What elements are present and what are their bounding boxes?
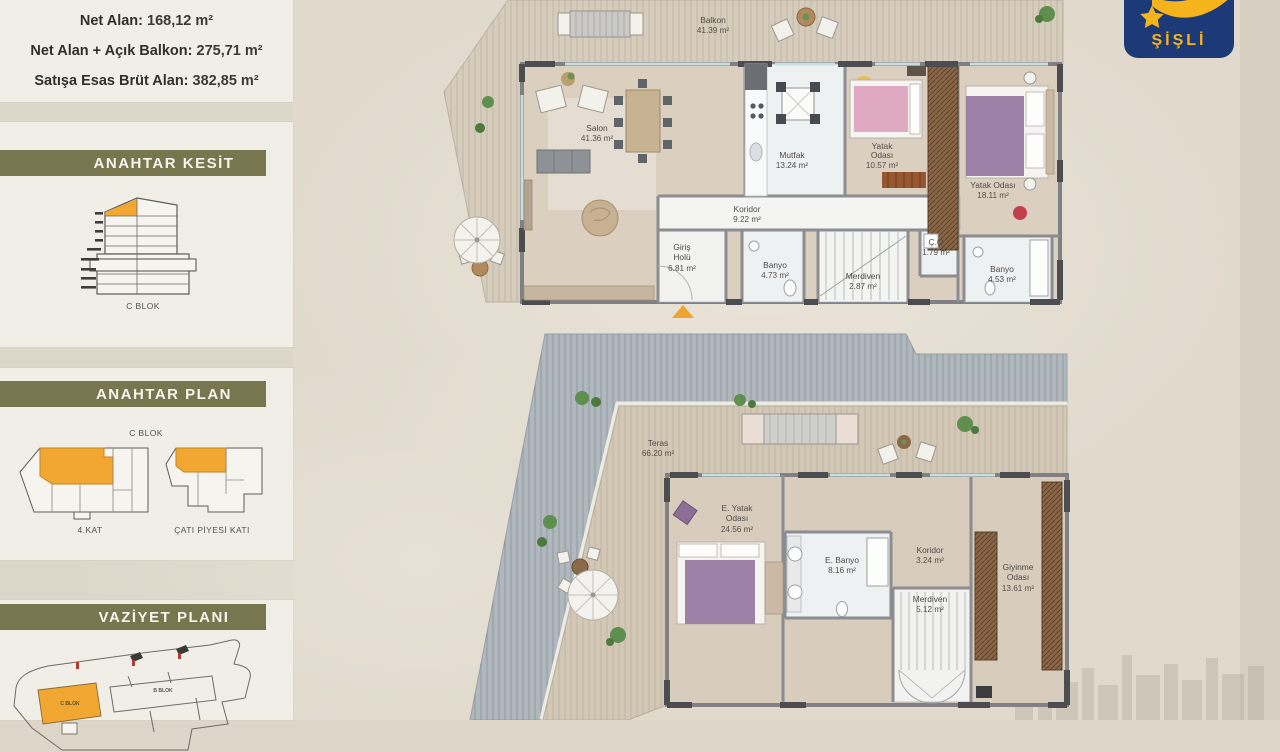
key-plan-cati-unit bbox=[176, 448, 226, 472]
svg-text:Yatak Odası: Yatak Odası bbox=[970, 180, 1015, 190]
net-alan-balkon-label: Net Alan + Açık Balkon: bbox=[30, 43, 192, 59]
entrance-arrow bbox=[672, 305, 694, 318]
svg-text:5.12 m²: 5.12 m² bbox=[916, 605, 944, 614]
net-alan-value: 168,12 m² bbox=[147, 13, 213, 29]
terrace-bench bbox=[742, 414, 858, 444]
kesit-caption: C BLOK bbox=[126, 301, 160, 311]
area-summary: Net Alan: 168,12 m² Net Alan + Açık Balk… bbox=[0, 6, 293, 96]
anahtar-plan-blok-caption: C BLOK bbox=[129, 428, 163, 438]
svg-text:1.79 m²: 1.79 m² bbox=[922, 248, 950, 257]
brut-alan-line: Satışa Esas Brüt Alan: 382,85 m² bbox=[0, 66, 293, 96]
site-b-blok-label: B BLOK bbox=[153, 688, 173, 694]
vaziyet-plani-header: VAZİYET PLANI bbox=[0, 604, 266, 630]
key-plan-cati bbox=[166, 448, 262, 512]
svg-text:10.57 m²: 10.57 m² bbox=[866, 161, 899, 170]
anahtar-kesit-title: ANAHTAR KESİT bbox=[94, 155, 235, 172]
anahtar-plan-title: ANAHTAR PLAN bbox=[96, 386, 232, 403]
kesit-building-section bbox=[81, 198, 196, 294]
svg-text:Giriş: Giriş bbox=[673, 242, 690, 252]
upper-floor-plan: Balkon 41.39 m² Salon 41.36 m² Mutfak 13… bbox=[430, 0, 1070, 322]
svg-text:Ç.O: Ç.O bbox=[929, 237, 944, 247]
lower-floor-plan: Teras 66.20 m² E. Yatak Odası 24.56 m² E… bbox=[430, 330, 1070, 720]
vaziyet-plani-title: VAZİYET PLANI bbox=[99, 609, 230, 626]
svg-text:4.53 m²: 4.53 m² bbox=[988, 275, 1016, 284]
key-plan-4kat-unit bbox=[40, 448, 113, 484]
svg-text:Merdiven: Merdiven bbox=[846, 271, 881, 281]
svg-text:4.73 m²: 4.73 m² bbox=[761, 271, 789, 280]
svg-text:Odası: Odası bbox=[871, 150, 893, 160]
site-building-b-blok: B BLOK bbox=[153, 688, 173, 694]
svg-text:6.81 m²: 6.81 m² bbox=[668, 264, 696, 273]
svg-text:E. Yatak: E. Yatak bbox=[722, 503, 754, 513]
anahtar-plan-header: ANAHTAR PLAN bbox=[0, 381, 266, 407]
brut-alan-value: 382,85 m² bbox=[193, 73, 259, 89]
anahtar-plan-diagrams: C BLOK 4.KAT ÇATI PİYESİ KATI bbox=[0, 424, 293, 544]
kesit-diagram: C BLOK bbox=[75, 182, 220, 314]
svg-text:66.20 m²: 66.20 m² bbox=[642, 449, 675, 458]
svg-text:Odası: Odası bbox=[726, 513, 748, 523]
kesit-highlight-floor bbox=[106, 199, 137, 216]
svg-text:Koridor: Koridor bbox=[734, 204, 761, 214]
svg-text:Banyo: Banyo bbox=[990, 264, 1014, 274]
svg-text:Giyinme: Giyinme bbox=[1003, 562, 1034, 572]
svg-text:Salon: Salon bbox=[586, 123, 608, 133]
svg-text:Koridor: Koridor bbox=[917, 545, 944, 555]
svg-text:18.11 m²: 18.11 m² bbox=[977, 191, 1009, 200]
svg-text:8.16 m²: 8.16 m² bbox=[828, 566, 856, 575]
svg-text:Balkon: Balkon bbox=[700, 15, 726, 25]
brut-alan-label: Satışa Esas Brüt Alan: bbox=[34, 73, 188, 89]
svg-text:13.24 m²: 13.24 m² bbox=[776, 161, 809, 170]
key-plan-cati-caption: ÇATI PİYESİ KATI bbox=[174, 525, 250, 535]
svg-text:Odası: Odası bbox=[1007, 572, 1029, 582]
svg-text:E. Banyo: E. Banyo bbox=[825, 555, 859, 565]
bedroom-wardrobe bbox=[928, 66, 958, 250]
svg-text:2.87 m²: 2.87 m² bbox=[849, 282, 877, 291]
key-plan-4kat-caption: 4.KAT bbox=[78, 525, 103, 535]
net-alan-label: Net Alan: bbox=[80, 13, 143, 29]
sisli-logo-text: ŞİŞLİ bbox=[1124, 32, 1234, 50]
site-c-blok-label: C BLOK bbox=[60, 701, 80, 707]
net-alan-balkon-line: Net Alan + Açık Balkon: 275,71 m² bbox=[0, 36, 293, 66]
svg-text:Merdiven: Merdiven bbox=[913, 594, 948, 604]
site-building-c-blok: C BLOK bbox=[38, 683, 101, 734]
net-alan-balkon-value: 275,71 m² bbox=[197, 43, 263, 59]
site-markers bbox=[76, 645, 189, 669]
key-plan-4kat bbox=[20, 448, 148, 519]
svg-text:Mutfak: Mutfak bbox=[779, 150, 805, 160]
comet-swoosh-icon bbox=[1152, 0, 1234, 18]
svg-text:41.36 m²: 41.36 m² bbox=[581, 134, 614, 143]
balcony-bench bbox=[558, 11, 643, 37]
svg-text:Holü: Holü bbox=[673, 252, 691, 262]
net-alan-line: Net Alan: 168,12 m² bbox=[0, 6, 293, 36]
svg-text:24.56 m²: 24.56 m² bbox=[721, 525, 754, 534]
svg-text:Banyo: Banyo bbox=[763, 260, 787, 270]
sisli-logo: ŞİŞLİ bbox=[1124, 0, 1234, 58]
svg-text:41.39 m²: 41.39 m² bbox=[697, 26, 730, 35]
svg-text:Teras: Teras bbox=[648, 438, 668, 448]
svg-text:9.22 m²: 9.22 m² bbox=[733, 215, 761, 224]
vaziyet-plani-diagram: C BLOK B BLOK bbox=[0, 632, 293, 752]
anahtar-kesit-header: ANAHTAR KESİT bbox=[0, 150, 266, 176]
svg-text:13.61 m²: 13.61 m² bbox=[1002, 584, 1035, 593]
svg-text:3.24 m²: 3.24 m² bbox=[916, 556, 944, 565]
